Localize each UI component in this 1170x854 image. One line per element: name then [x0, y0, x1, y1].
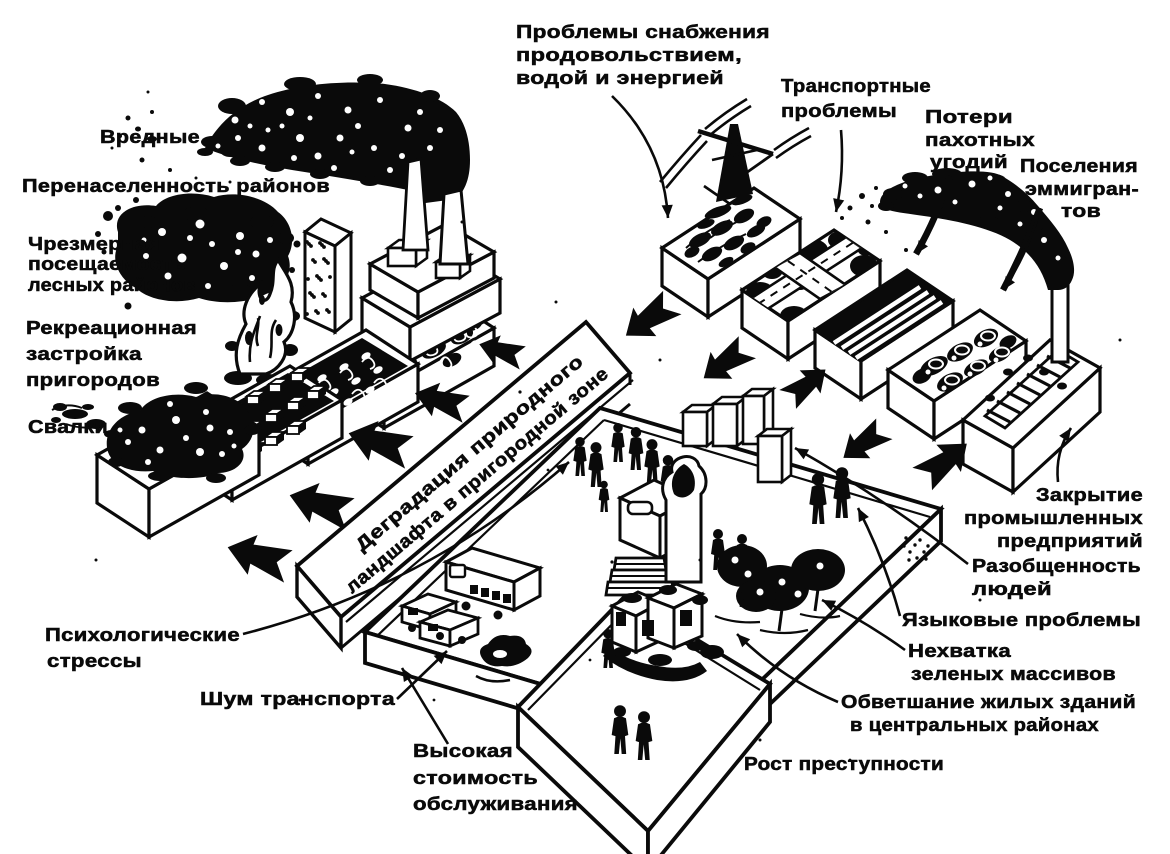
svg-text:тов: тов — [1061, 200, 1101, 221]
svg-text:Закрытие: Закрытие — [1036, 484, 1143, 505]
svg-text:проблемы: проблемы — [781, 100, 897, 121]
svg-text:Высокая: Высокая — [413, 740, 513, 761]
svg-text:Рекреационная: Рекреационная — [26, 317, 197, 338]
svg-text:обслуживания: обслуживания — [413, 793, 578, 814]
svg-text:Чрезмерная: Чрезмерная — [28, 233, 160, 254]
svg-text:предприятий: предприятий — [997, 530, 1143, 551]
svg-text:стрессы: стрессы — [47, 650, 142, 671]
svg-text:водой и энергией: водой и энергией — [516, 67, 724, 88]
svg-text:продовольствием,: продовольствием, — [516, 44, 742, 65]
svg-text:Свалки: Свалки — [28, 416, 108, 437]
svg-text:угодий: угодий — [930, 151, 1008, 172]
svg-text:Разобщенность: Разобщенность — [972, 555, 1141, 576]
svg-text:эммигран-: эммигран- — [1025, 178, 1139, 199]
svg-text:промышленных: промышленных — [964, 507, 1143, 528]
svg-text:Вредные: Вредные — [100, 126, 200, 147]
svg-text:Языковые проблемы: Языковые проблемы — [902, 609, 1141, 630]
svg-text:пахотных: пахотных — [925, 129, 1035, 150]
svg-text:Шум транспорта: Шум транспорта — [200, 688, 396, 709]
svg-text:пригородов: пригородов — [26, 369, 160, 390]
svg-text:Проблемы снабжения: Проблемы снабжения — [516, 21, 770, 42]
svg-text:Перенаселенность районов: Перенаселенность районов — [22, 175, 330, 196]
svg-text:Транспортные: Транспортные — [781, 75, 931, 96]
svg-text:зеленых массивов: зеленых массивов — [911, 663, 1116, 684]
svg-text:Обветшание жилых зданий: Обветшание жилых зданий — [841, 691, 1136, 712]
svg-text:Нехватка: Нехватка — [908, 640, 1011, 661]
svg-text:людей: людей — [972, 578, 1052, 599]
svg-text:в центральных районах: в центральных районах — [850, 714, 1099, 735]
svg-text:посещаемость: посещаемость — [28, 253, 186, 274]
svg-text:застройка: застройка — [26, 343, 143, 364]
svg-text:Поселения: Поселения — [1020, 155, 1138, 176]
svg-text:Психологические: Психологические — [45, 624, 240, 645]
svg-text:Рост преступности: Рост преступности — [744, 753, 944, 774]
svg-text:стоимость: стоимость — [413, 767, 538, 788]
svg-text:лесных районов: лесных районов — [28, 274, 196, 295]
svg-text:Потери: Потери — [925, 106, 1013, 127]
